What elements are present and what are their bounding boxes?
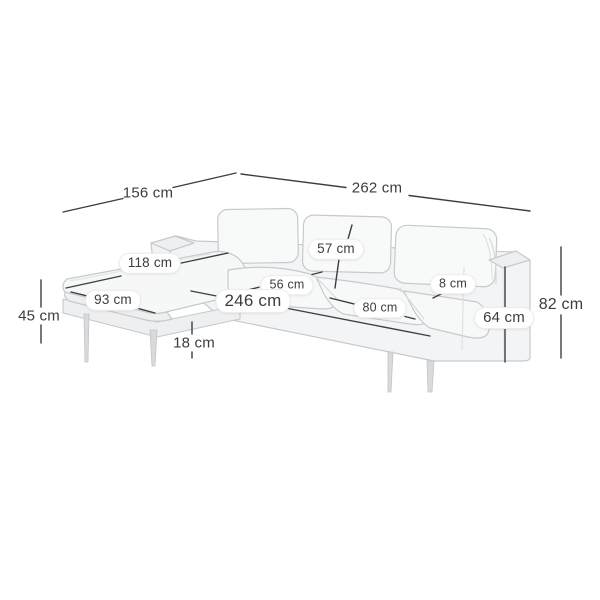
dimension-label-156cm: 156 cm <box>123 186 173 201</box>
dimension-label-45cm: 45 cm <box>18 309 60 324</box>
dimension-label-262cm: 262 cm <box>352 181 402 196</box>
dimension-label-18cm: 18 cm <box>173 336 215 351</box>
dimension-label-8cm: 8 cm <box>430 274 476 294</box>
dimension-label-82cm: 82 cm <box>539 297 584 313</box>
dimension-diagram: 156 cm 262 cm 57 cm 118 cm 56 cm 246 cm … <box>0 0 600 600</box>
dimension-label-246cm: 246 cm <box>216 289 291 313</box>
dimension-label-64cm: 64 cm <box>474 307 534 329</box>
dimension-label-80cm: 80 cm <box>353 298 406 318</box>
dimension-label-118cm: 118 cm <box>119 253 181 274</box>
dimension-label-93cm: 93 cm <box>85 290 141 311</box>
dimension-label-57cm: 57 cm <box>308 239 364 260</box>
